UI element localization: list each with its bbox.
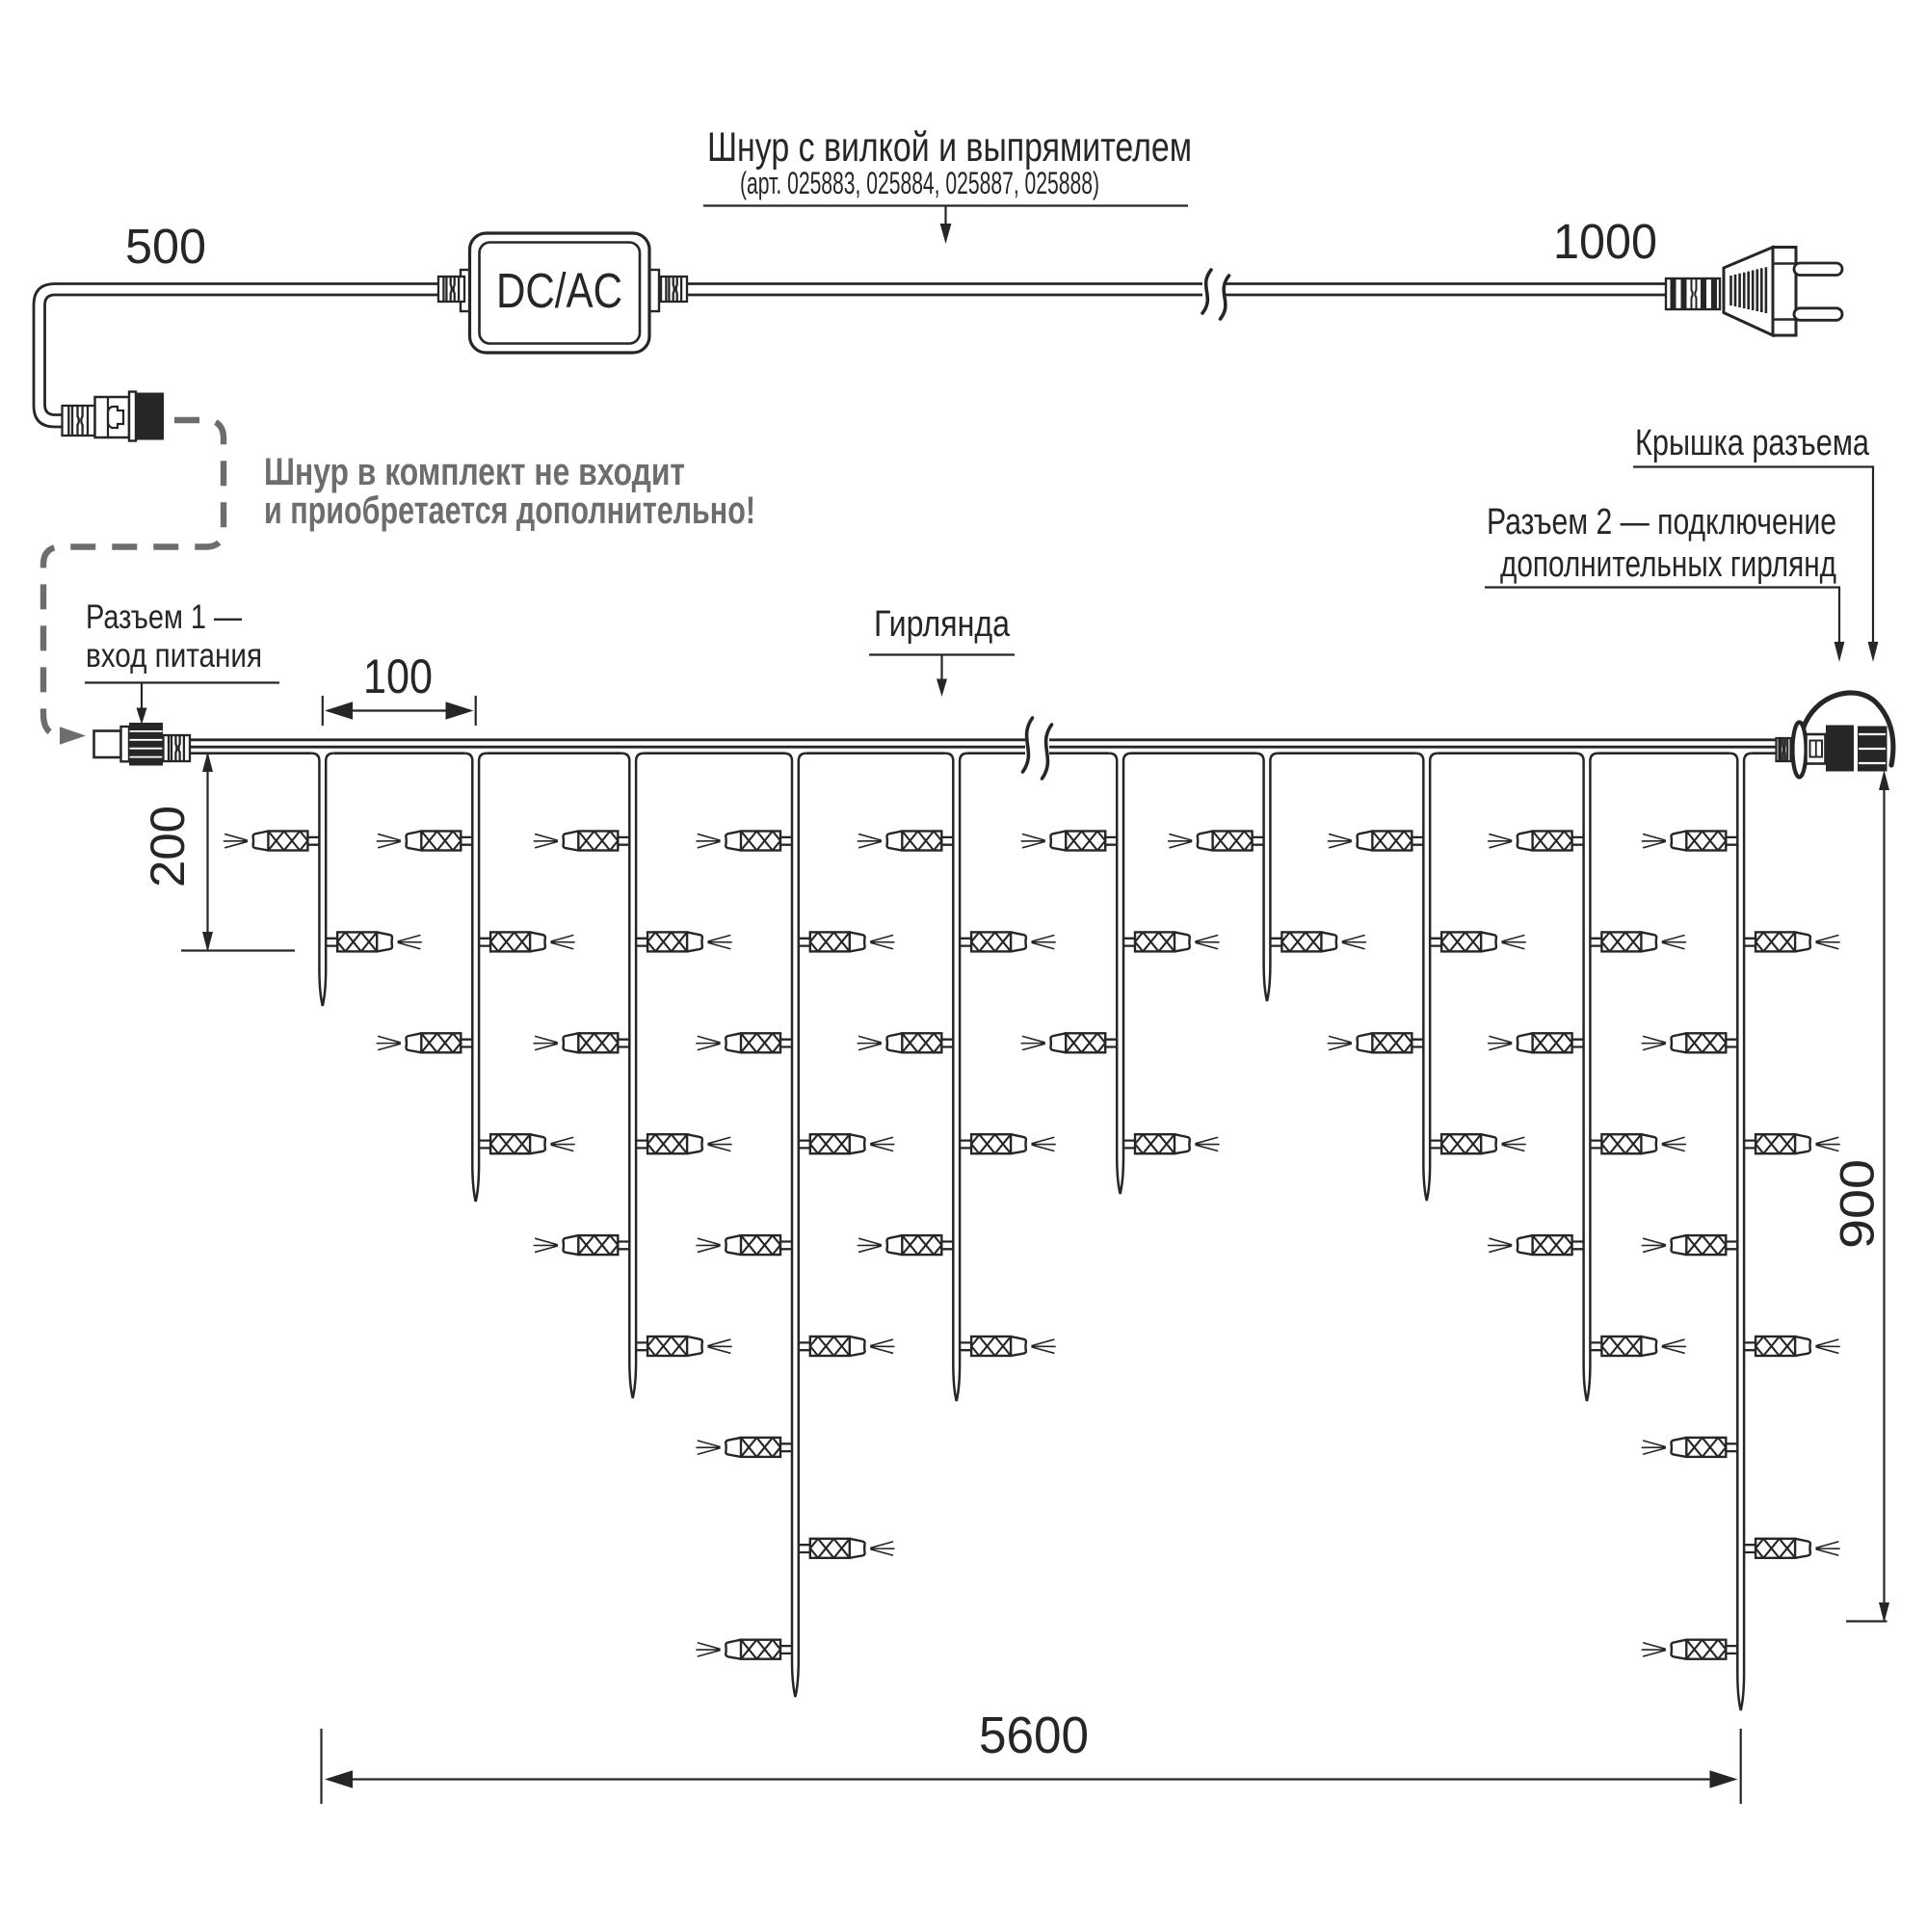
- svg-text:5600: 5600: [979, 1707, 1089, 1764]
- svg-text:(арт. 025883, 025884, 025887,: (арт. 025883, 025884, 025887, 025888): [740, 166, 1099, 200]
- svg-text:1000: 1000: [1553, 214, 1657, 269]
- svg-text:500: 500: [125, 219, 206, 274]
- svg-text:вход питания: вход питания: [86, 637, 262, 675]
- svg-text:Шнур с вилкой и выпрямителем: Шнур с вилкой и выпрямителем: [707, 124, 1192, 171]
- svg-text:Шнур в комплект не входит: Шнур в комплект не входит: [264, 451, 685, 493]
- svg-text:Разъем 1 —: Разъем 1 —: [86, 598, 242, 636]
- svg-text:Гирлянда: Гирлянда: [874, 604, 1011, 645]
- svg-text:200: 200: [141, 806, 195, 887]
- svg-text:и приобретается дополнительно!: и приобретается дополнительно!: [264, 490, 755, 532]
- svg-text:100: 100: [363, 649, 433, 703]
- svg-text:DC/AC: DC/AC: [496, 263, 622, 318]
- svg-text:900: 900: [1831, 1159, 1885, 1249]
- svg-text:Разъем 2 — подключение: Разъем 2 — подключение: [1487, 502, 1836, 543]
- svg-text:дополнительных гирлянд: дополнительных гирлянд: [1500, 544, 1836, 585]
- svg-text:Крышка разъема: Крышка разъема: [1635, 423, 1870, 463]
